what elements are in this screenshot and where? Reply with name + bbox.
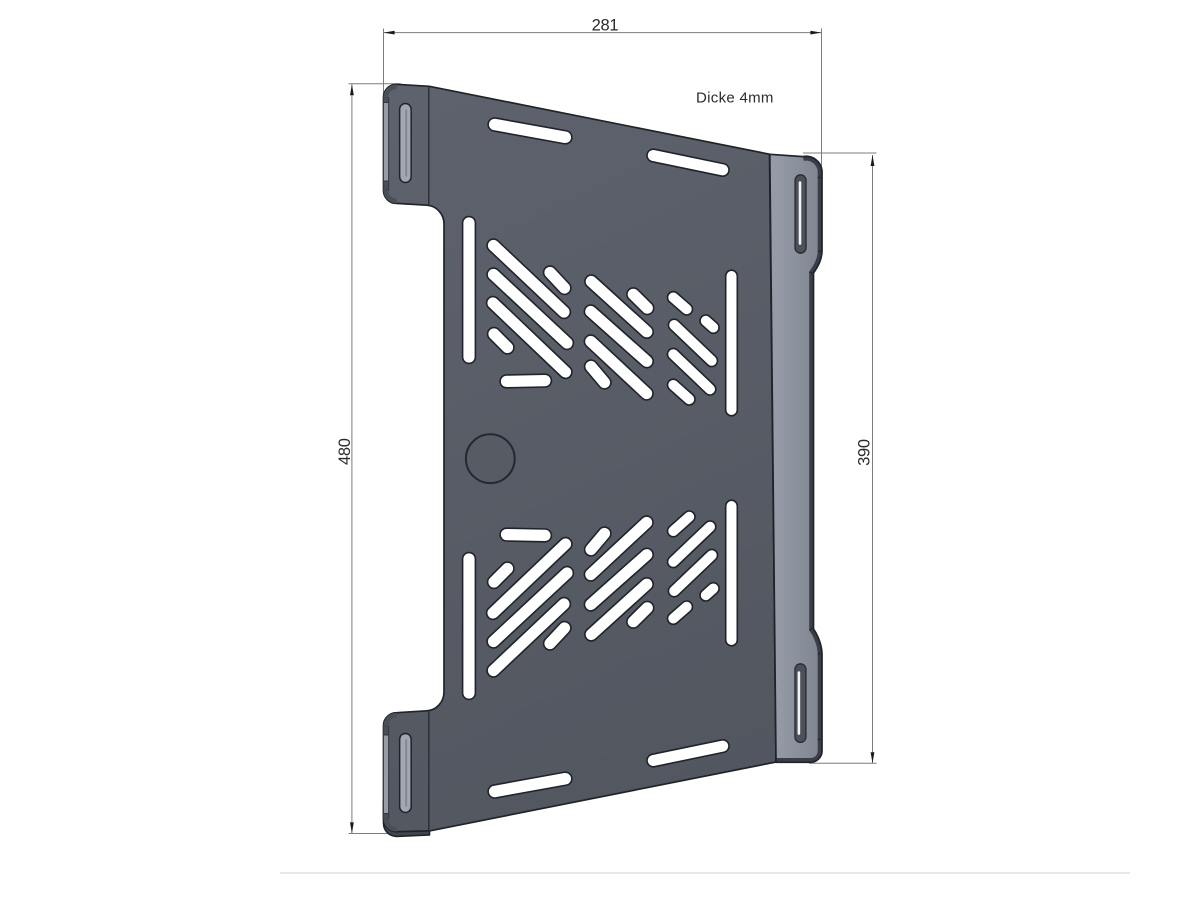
svg-text:480: 480 <box>336 438 354 465</box>
svg-text:281: 281 <box>592 17 619 35</box>
svg-text:Dicke 4mm: Dicke 4mm <box>696 90 774 107</box>
svg-text:390: 390 <box>856 439 874 466</box>
